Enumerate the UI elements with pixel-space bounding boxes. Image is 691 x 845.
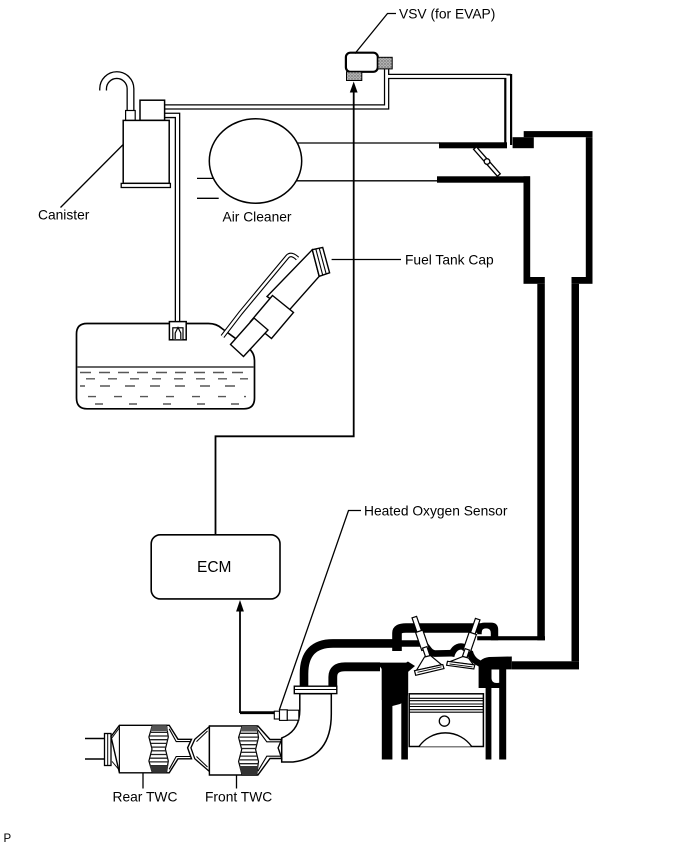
svg-text:Air Cleaner: Air Cleaner xyxy=(223,210,292,225)
svg-text:Fuel Tank Cap: Fuel Tank Cap xyxy=(405,253,494,268)
svg-text:P: P xyxy=(4,833,12,845)
svg-text:ECM: ECM xyxy=(197,559,231,576)
svg-text:Canister: Canister xyxy=(38,208,90,223)
svg-text:Heated Oxygen Sensor: Heated Oxygen Sensor xyxy=(364,504,508,519)
svg-text:Front TWC: Front TWC xyxy=(205,790,272,805)
svg-text:VSV (for EVAP): VSV (for EVAP) xyxy=(399,7,495,22)
svg-text:Rear TWC: Rear TWC xyxy=(113,790,178,805)
